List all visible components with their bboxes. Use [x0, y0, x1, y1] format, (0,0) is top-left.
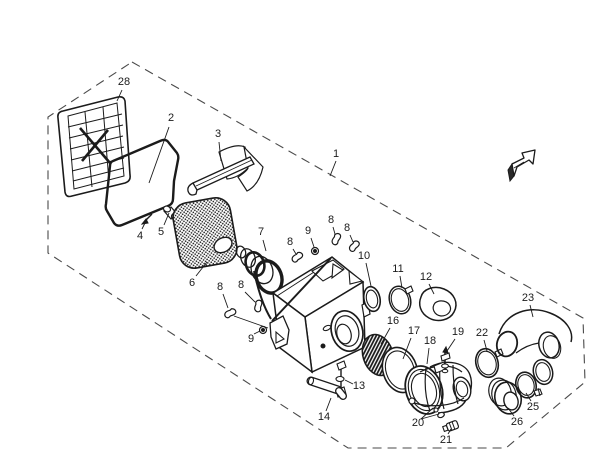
exploded-parts-diagram-page: 2823145678988889101112131416171819202122… [0, 0, 605, 471]
part-10-outlet-neck [362, 285, 383, 317]
part-callout-6: 6 [189, 277, 195, 289]
part-6-filter-element [171, 195, 240, 270]
leader-line-part-18 [427, 348, 429, 364]
part-callout-8: 8 [344, 222, 350, 234]
assembly-boundary-dashed-outline [48, 62, 585, 448]
leader-line-part-10 [366, 263, 371, 286]
leader-line-part-7 [263, 240, 266, 251]
leader-line-part-8 [223, 294, 228, 308]
leader-line-part-8 [350, 235, 353, 242]
leader-line-part-14 [326, 398, 331, 411]
part-callout-2: 2 [168, 112, 174, 124]
part-12-duct-joint [420, 287, 456, 320]
part-callout-8: 8 [287, 236, 293, 248]
part-21-plug [442, 420, 459, 433]
leader-line-part-2 [149, 127, 169, 183]
clip-8 [292, 251, 303, 263]
part-callout-11: 11 [392, 263, 403, 275]
part-callout-3: 3 [215, 128, 221, 140]
part-28-grille-cover [58, 97, 130, 197]
part-callout-18: 18 [424, 335, 436, 347]
part-callout-22: 22 [476, 327, 488, 339]
part-callout-1: 1 [333, 148, 339, 160]
part-20-fasteners [434, 408, 445, 418]
part-callout-23: 23 [522, 292, 534, 304]
leader-line-part-8 [245, 292, 255, 302]
clip-8 [330, 233, 342, 246]
part-callout-9: 9 [248, 333, 254, 345]
leader-line-part-5 [164, 213, 169, 225]
part-23-intake-elbow [494, 310, 572, 361]
leader-line-part-1 [330, 161, 336, 176]
airbox-housing [254, 257, 368, 372]
leader-line-part-13 [345, 380, 353, 384]
part-callout-28: 28 [118, 76, 130, 88]
part-callout-17: 17 [408, 325, 420, 337]
part-11-clamp [386, 284, 414, 317]
part-callout-7: 7 [258, 226, 264, 238]
leader-line-part-19 [447, 339, 455, 351]
part-callout-10: 10 [358, 250, 370, 262]
leader-line-part-9 [254, 331, 260, 334]
grommet-9 [260, 327, 267, 334]
part-callout-8: 8 [238, 279, 244, 291]
part-callout-20: 20 [412, 417, 424, 429]
part-callout-21: 21 [440, 434, 452, 446]
part-callout-14: 14 [318, 411, 330, 423]
part-callout-25: 25 [527, 401, 539, 413]
gasket-ring [531, 357, 556, 386]
part-3-bracket [188, 146, 263, 195]
part-callout-4: 4 [137, 230, 143, 242]
part-callout-8: 8 [328, 214, 334, 226]
part-callout-12: 12 [420, 271, 432, 283]
part-callout-16: 16 [387, 315, 399, 327]
part-callout-19: 19 [452, 326, 464, 338]
clip-8 [224, 307, 237, 320]
exploded-parts-diagram: 2823145678988889101112131416171819202122… [0, 0, 605, 471]
direction-arrow-icon [508, 150, 535, 181]
part-callout-26: 26 [511, 416, 523, 428]
part-callout-13: 13 [353, 380, 365, 392]
part-callout-8: 8 [217, 281, 223, 293]
leader-line-part-8 [333, 227, 335, 234]
part-26-coupler [486, 376, 525, 417]
leader-line-part-23 [530, 305, 533, 317]
part-callout-5: 5 [158, 226, 164, 238]
leader-line-part-9 [311, 238, 314, 247]
part-callout-9: 9 [305, 225, 311, 237]
grommet-9 [312, 248, 319, 255]
leader-line-part-8 [293, 249, 296, 254]
